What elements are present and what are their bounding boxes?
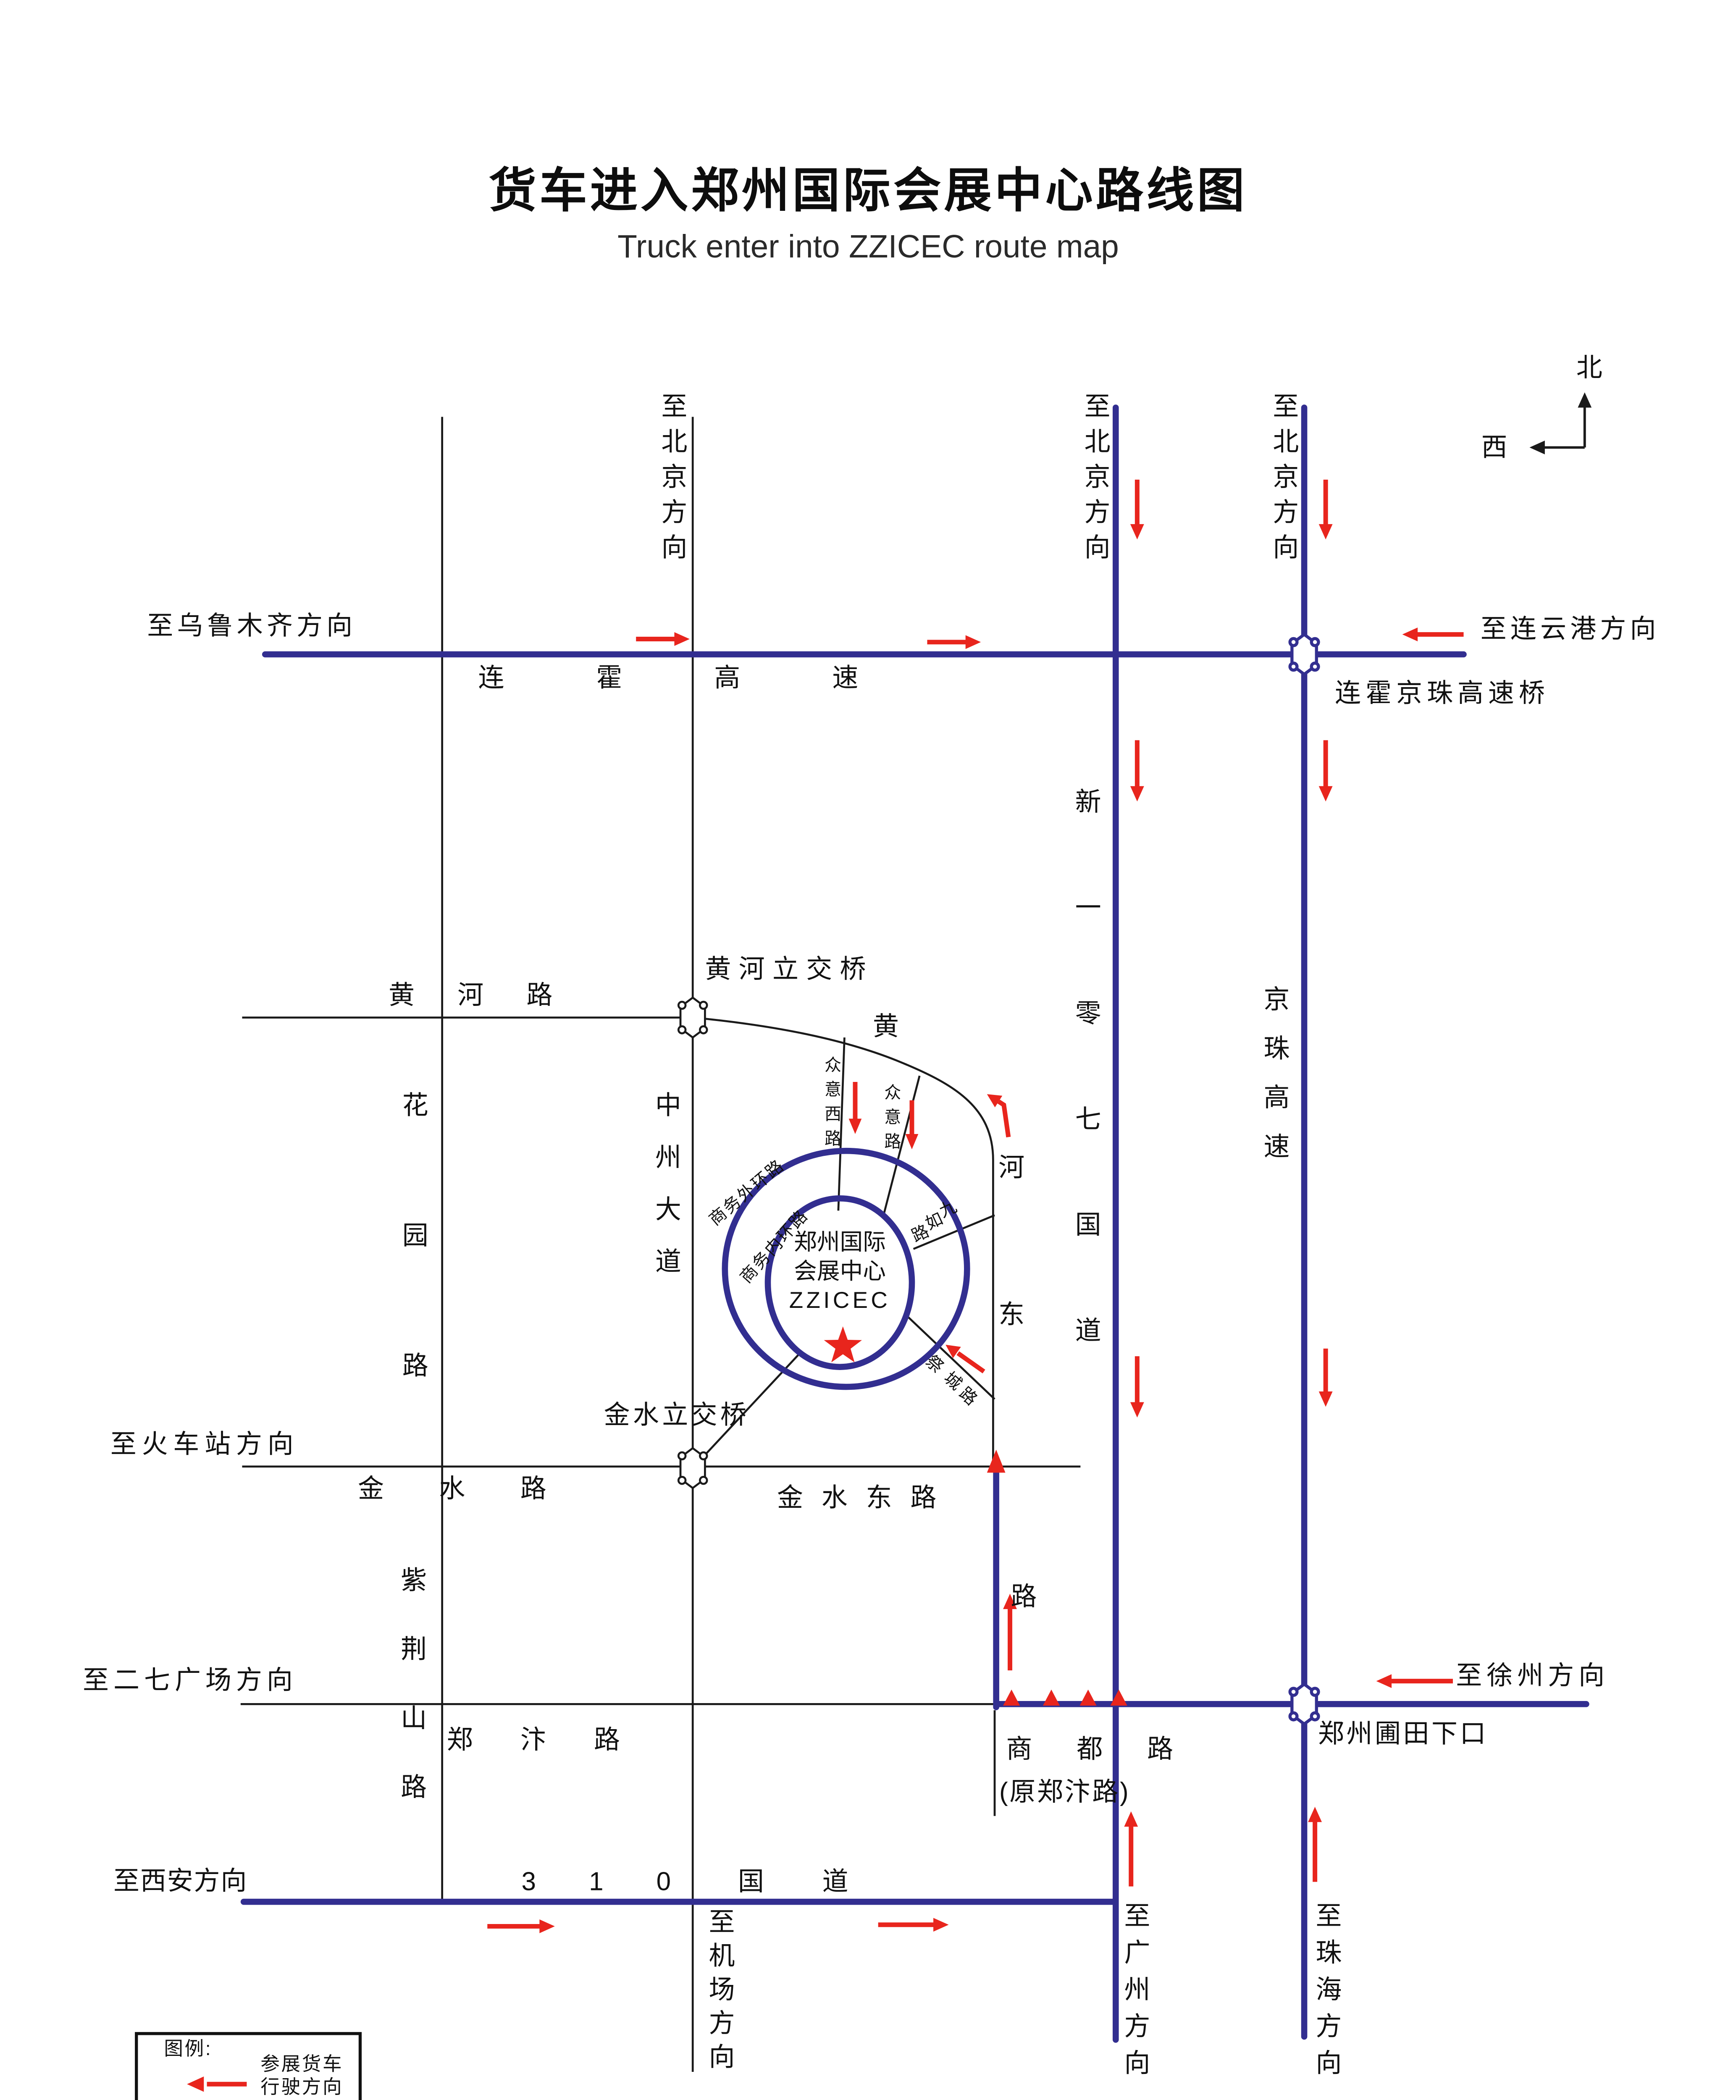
interchange-icon-putian xyxy=(1290,1684,1318,1724)
bridge-label-putian: 郑州圃田下口 xyxy=(1318,1721,1488,1747)
arrow-west-from-lianyungang xyxy=(1402,627,1464,641)
arrow-north-jingzhu-bottom xyxy=(1308,1807,1322,1882)
zzicec-line3: ZZICEC xyxy=(789,1286,890,1315)
road-label-shangdu: 商都路 xyxy=(1006,1736,1218,1762)
arrow-north-107-bottom xyxy=(1124,1811,1138,1887)
direction-label-airport: 至机场方向 xyxy=(706,1908,732,2076)
arrow-south-jingzhu-3 xyxy=(1319,1349,1333,1407)
arrow-south-zhongyi-west xyxy=(849,1082,862,1134)
direction-label-beijing-2: 至北京方向 xyxy=(1081,392,1107,569)
legend-arrow-label-1: 参展货车 xyxy=(260,2055,343,2074)
arrow-east-lianhuo-2 xyxy=(927,635,981,649)
direction-label-erqi-square: 至二七广场方向 xyxy=(83,1667,297,1693)
compass-north-label: 北 xyxy=(1576,355,1602,381)
arrow-bend-huanghe-east xyxy=(987,1094,1009,1137)
direction-label-zhuhai: 至珠海方向 xyxy=(1313,1902,1339,2086)
arrow-south-107-1 xyxy=(1130,480,1144,539)
direction-label-xian: 至西安方向 xyxy=(113,1868,247,1894)
arrow-south-jingzhu-2 xyxy=(1319,740,1333,801)
arrow-east-lianhuo-1 xyxy=(636,632,690,646)
arrow-north-approach xyxy=(1003,1594,1017,1670)
road-label-zhongzhou: 中州大道 xyxy=(652,1091,678,1299)
direction-label-guangzhou: 至广州方向 xyxy=(1121,1902,1147,2086)
road-label-zijingshan: 紫荆山路 xyxy=(398,1566,424,1842)
zzicec-line1: 郑州国际 xyxy=(789,1228,890,1257)
direction-label-beijing-1: 至北京方向 xyxy=(658,392,684,569)
arrow-east-g310-1 xyxy=(487,1919,555,1933)
road-label-zhongyi: 众意路 xyxy=(882,1084,899,1157)
arrow-south-107-2 xyxy=(1130,740,1144,801)
road-label-zhongyi-west: 众意西路 xyxy=(822,1056,839,1154)
bridge-label-lianhuo-jingzhu: 连霍京珠高速桥 xyxy=(1335,680,1550,706)
arrow-east-g310-2 xyxy=(878,1918,949,1932)
interchange-icon-lianhuo-jingzhu xyxy=(1290,635,1318,675)
arrow-marker-shangdu-3 xyxy=(1080,1690,1097,1706)
direction-label-xuzhou: 至徐州方向 xyxy=(1456,1663,1609,1689)
bridge-label-jinshui: 金水立交桥 xyxy=(604,1402,750,1428)
road-label-jinshui: 金水路 xyxy=(358,1476,601,1502)
road-label-new-107: 新一零七国道 xyxy=(1072,787,1098,1422)
direction-label-urumqi: 至乌鲁木齐方向 xyxy=(147,613,356,639)
map-canvas xyxy=(0,0,1736,2100)
direction-label-railway-station: 至火车站方向 xyxy=(110,1431,299,1457)
zzicec-label: 郑州国际 会展中心 ZZICEC xyxy=(789,1228,890,1315)
road-label-shangdu-note: (原郑汴路) xyxy=(999,1779,1130,1805)
route-map: 北 西 至北京方向 至北京方向 至北京方向 至乌鲁木齐方向 连霍高速 至连云港方… xyxy=(0,0,1736,2100)
compass-west-label: 西 xyxy=(1481,434,1507,460)
legend-arrow-label-2: 行驶方向 xyxy=(260,2078,343,2097)
arrow-south-107-3 xyxy=(1130,1356,1144,1417)
page: 货车进入郑州国际会展中心路线图 Truck enter into ZZICEC … xyxy=(0,0,1736,2100)
road-label-jingzhu: 京珠高速 xyxy=(1261,985,1287,1181)
zzicec-line2: 会展中心 xyxy=(789,1257,890,1286)
zzicec-star-icon xyxy=(824,1326,862,1362)
direction-label-lianyungang: 至连云港方向 xyxy=(1481,616,1660,642)
interchange-icon-huanghe xyxy=(678,997,707,1037)
compass-icon xyxy=(1529,392,1592,454)
road-label-huanghe: 黄河路 xyxy=(389,982,596,1008)
road-label-huayuan: 花园路 xyxy=(399,1091,425,1482)
truck-route-roads xyxy=(244,408,1586,2040)
arrow-marker-shangdu-2 xyxy=(1043,1690,1060,1706)
direction-label-beijing-3: 至北京方向 xyxy=(1270,392,1296,569)
legend-title: 图例: xyxy=(164,2040,212,2059)
arrow-west-from-xuzhou xyxy=(1376,1674,1453,1688)
arrow-marker-jinshui-crossing xyxy=(987,1450,1006,1473)
road-label-lianhuo: 连霍高速 xyxy=(478,665,950,691)
bridge-label-huanghe: 黄河立交桥 xyxy=(705,956,873,982)
interchange-icon-jinshui xyxy=(678,1448,707,1488)
road-label-zhengbian: 郑汴路 xyxy=(447,1727,667,1753)
arrow-marker-shangdu-1 xyxy=(1003,1690,1020,1706)
road-label-jinshui-east: 金水东路 xyxy=(777,1485,955,1511)
arrow-south-jingzhu-1 xyxy=(1319,480,1333,539)
